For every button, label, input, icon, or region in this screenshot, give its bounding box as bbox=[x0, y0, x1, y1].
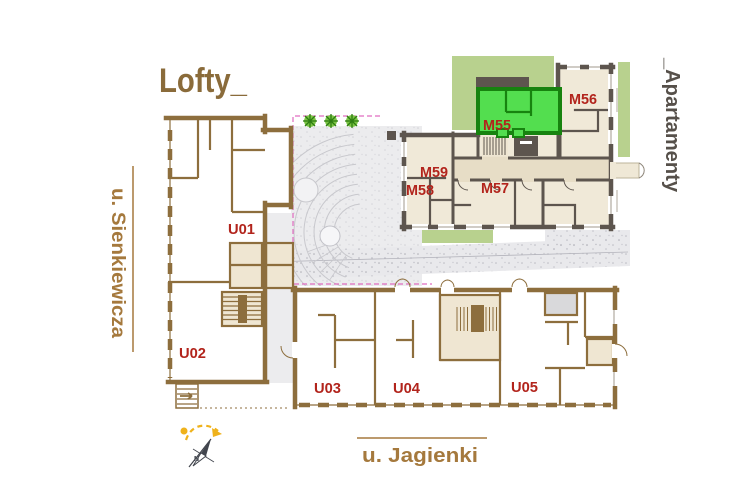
unit-label-m56[interactable]: M56 bbox=[569, 91, 597, 108]
unit-label-m57[interactable]: M57 bbox=[481, 180, 509, 197]
tree-row bbox=[303, 114, 359, 128]
lofty-bottom-staircase bbox=[440, 295, 500, 360]
floorplan-page: M55 M56 M57 M58 M59 U01 U02 U03 U04 U05 … bbox=[0, 0, 750, 500]
unit-label-u02[interactable]: U02 bbox=[179, 345, 206, 362]
svg-text:u. Sienkiewicza: u. Sienkiewicza bbox=[107, 188, 128, 338]
unit-label-m59[interactable]: M59 bbox=[420, 164, 448, 181]
lofty-staircase bbox=[222, 292, 262, 326]
unit-label-m58[interactable]: M58 bbox=[406, 182, 434, 199]
apartamenty-title: _Apartamenty bbox=[661, 57, 683, 193]
lofty-title: Lofty_ bbox=[159, 62, 248, 100]
apartments-building bbox=[387, 64, 644, 230]
street-label-sienkiewicza: u. Sienkiewicza bbox=[107, 166, 133, 352]
tree-icon bbox=[324, 114, 338, 128]
tree-icon bbox=[303, 114, 317, 128]
site-plan-canvas: M55 M56 M57 M58 M59 U01 U02 U03 U04 U05 … bbox=[0, 0, 750, 500]
tree-icon bbox=[345, 114, 359, 128]
unit-label-u04[interactable]: U04 bbox=[393, 380, 421, 397]
compass-north-label: N bbox=[194, 456, 199, 463]
unit-label-u01[interactable]: U01 bbox=[228, 221, 255, 238]
unit-label-u03[interactable]: U03 bbox=[314, 380, 341, 397]
north-compass-icon: N bbox=[181, 426, 223, 467]
unit-label-m55[interactable]: M55 bbox=[483, 117, 511, 134]
exterior-stair bbox=[176, 384, 198, 408]
unit-label-u05[interactable]: U05 bbox=[511, 379, 538, 396]
svg-text:u. Jagienki: u. Jagienki bbox=[362, 445, 478, 467]
street-label-jagienki: u. Jagienki bbox=[357, 438, 487, 467]
